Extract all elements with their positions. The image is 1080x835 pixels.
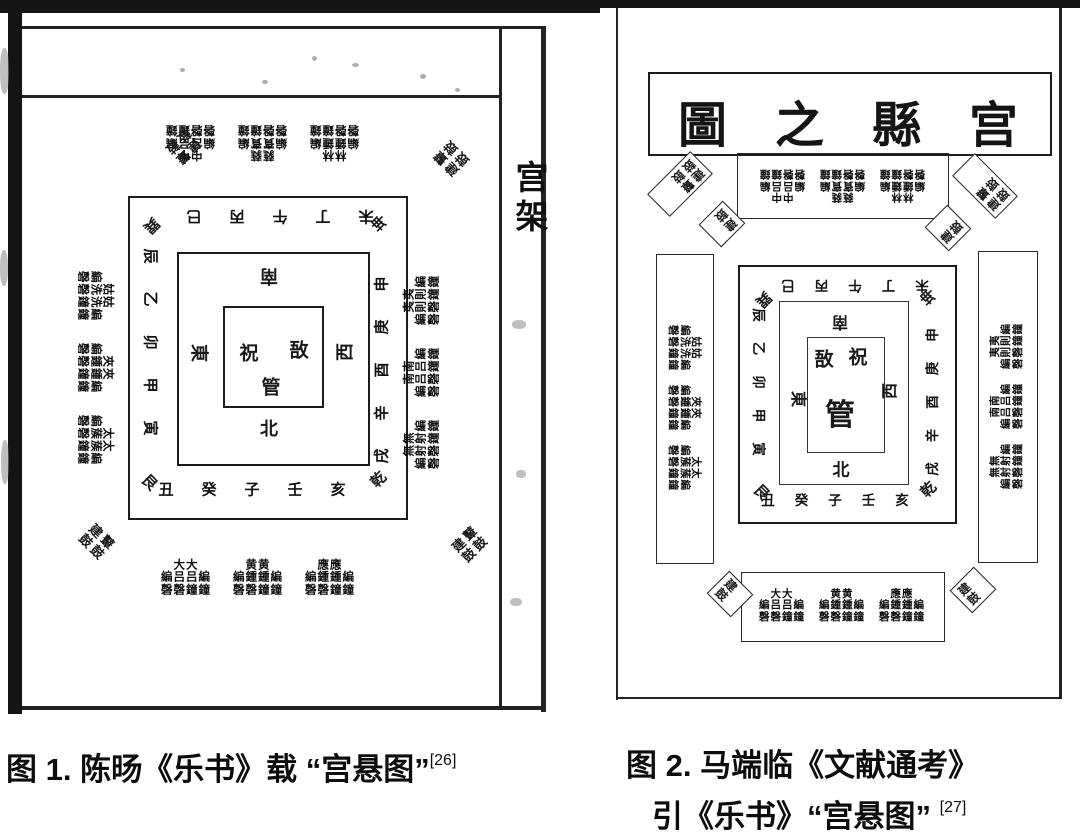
margin-divider-line xyxy=(499,28,502,707)
pitch-group: 應應編鍾鍾編磬磬鐘鐘 xyxy=(305,559,355,596)
direction-south: 南 xyxy=(832,312,848,336)
drum-label: 建鼓 xyxy=(713,206,740,233)
direction-north: 北 xyxy=(260,415,278,441)
pitch-group: 夾夾編鍾鍾編磬磬鐘鐘 xyxy=(667,385,701,431)
page-edge-right xyxy=(1059,8,1062,698)
bell-band-top: 林林編鍾鍾編磬磬鐘鐘蕤蕤編賓賓編磬磬鐘鐘中中編吕吕編磬磬鐘鐘 xyxy=(759,168,925,202)
title-char: 宫 xyxy=(969,86,1018,157)
diagram-title: 圖之縣宫 xyxy=(678,86,1018,157)
pitch-group: 大大編吕吕編磬磬鐘鐘 xyxy=(161,559,211,596)
instrument-yu: 敔 xyxy=(289,336,308,363)
page-frame-bottom xyxy=(22,706,546,710)
pitch-group: 應應編鍾鍾編磬磬鐘鐘 xyxy=(879,589,925,623)
instrument-zhu: 祝 xyxy=(848,343,867,370)
instrument-guan: 管 xyxy=(261,373,280,400)
bell-band-bottom: 大大編吕吕編磬磬鐘鐘黄黄編鍾鍾編磬磬鐘鐘應應編鍾鍾編磬磬鐘鐘 xyxy=(759,589,925,623)
pitch-group: 姑姑編洗洗編磬磬鐘鐘 xyxy=(76,271,113,321)
ink-speckle xyxy=(180,68,185,72)
drum-label: 建鼓 xyxy=(939,219,966,246)
ink-smudge xyxy=(0,250,8,286)
pitch-group: 黄黄編鍾鍾編磬磬鐘鐘 xyxy=(819,589,865,623)
pitch-group: 蕤蕤編賓賓編磬磬鐘鐘 xyxy=(237,123,287,160)
direction-west: 西 xyxy=(331,343,357,361)
pitch-group: 太太編蔟蔟編磬磬鐘鐘 xyxy=(76,415,113,465)
ink-smudge xyxy=(1,440,9,484)
pitch-group: 南南編吕吕編磬磬鐘鐘 xyxy=(990,383,1024,429)
figure2-caption-ref: [27] xyxy=(940,799,967,816)
pitch-group: 夷夷編則則編磬磬鐘鐘 xyxy=(990,323,1024,369)
drum-label: 建鼓 xyxy=(955,581,982,608)
ink-speckle xyxy=(352,63,359,67)
branches-col-west: 戌辛酉庚申 xyxy=(371,248,392,463)
figure2-caption-line2-text: 引《乐书》“宫悬图” xyxy=(652,799,931,834)
corner-drums-top-right: 建鼓鼙鼓 xyxy=(414,121,473,180)
title-char: 之 xyxy=(775,86,824,157)
direction-west: 西 xyxy=(876,383,900,399)
direction-south: 南 xyxy=(260,264,278,290)
title-char: 縣 xyxy=(872,86,921,157)
pitch-group: 夷夷編則則編磬磬鐘鐘 xyxy=(403,275,440,325)
corner-drums-top-right: 建鼓鼙鼓 xyxy=(952,153,1018,219)
branches-row-north: 丑癸子壬亥 xyxy=(158,479,373,500)
instrument-zhu: 祝 xyxy=(239,339,258,366)
title-char: 圖 xyxy=(678,86,727,157)
pitch-group: 蕤蕤編賓賓編磬磬鐘鐘 xyxy=(819,168,865,202)
pitch-group: 無無編射射編磬磬鐘鐘 xyxy=(403,419,440,469)
branches-col-east: 辰乙卯甲寅 xyxy=(141,248,162,463)
ink-speckle xyxy=(455,88,460,92)
ink-speckle xyxy=(312,56,317,61)
pitch-group: 姑姑編洗洗編磬磬鐘鐘 xyxy=(667,325,701,371)
ink-speckle xyxy=(420,74,426,79)
page-frame-left xyxy=(8,12,22,714)
figure2-caption-line2: 引《乐书》“宫悬图” [27] xyxy=(652,791,966,835)
figure1-caption-text: 图 1. 陈旸《乐书》载 “宫悬图” xyxy=(6,752,430,787)
ink-smudge xyxy=(512,320,526,329)
branches-col-west: 戌辛酉庚申 xyxy=(921,308,941,476)
branches-row-south: 未丁午丙巳 xyxy=(158,207,373,228)
branches-row-north: 丑癸子壬亥 xyxy=(761,489,929,509)
bell-band-right: 無無編射射編磬磬鐘鐘南南編吕吕編磬磬鐘鐘夷夷編則則編磬磬鐘鐘 xyxy=(990,323,1024,489)
page-frame-right xyxy=(541,26,546,712)
direction-north: 北 xyxy=(833,456,850,481)
inner-rule-line xyxy=(22,95,500,98)
pitch-group: 黄黄編鍾鍾編磬磬鐘鐘 xyxy=(233,559,283,596)
figure1-caption-ref: [26] xyxy=(430,752,457,769)
pitch-group: 林林編鍾鍾編磬磬鐘鐘 xyxy=(879,168,925,202)
ink-speckle xyxy=(262,80,268,84)
branches-col-east: 辰乙卯甲寅 xyxy=(750,308,770,476)
ink-smudge xyxy=(516,470,526,478)
pitch-group: 中中編吕吕編磬磬鐘鐘 xyxy=(759,168,805,202)
direction-east: 東 xyxy=(187,344,213,362)
branches-row-south: 未丁午丙巳 xyxy=(761,277,929,297)
scan-edge-bar xyxy=(0,0,600,13)
corner-drums-bottom-right: 建鼓 xyxy=(950,567,997,614)
pitch-group: 南南編吕吕編磬磬鐘鐘 xyxy=(403,347,440,397)
pitch-group: 林林編鍾鍾編磬磬鐘鐘 xyxy=(309,123,359,160)
ink-smudge xyxy=(0,48,9,94)
pitch-group: 無無編射射編磬磬鐘鐘 xyxy=(990,443,1024,489)
bell-band-bottom: 大大編吕吕編磬磬鐘鐘黄黄編鍾鍾編磬磬鐘鐘應應編鍾鍾編磬磬鐘鐘 xyxy=(161,559,355,596)
instrument-guan: 管 xyxy=(825,390,855,434)
figure1-caption: 图 1. 陈旸《乐书》载 “宫悬图”[26] xyxy=(6,744,456,789)
corner-drums-bottom-left: 建鼓鼙鼓 xyxy=(76,521,135,580)
margin-label-gongjia: 宫架 xyxy=(504,160,552,238)
page-frame-top xyxy=(22,26,546,29)
drum-label: 建鼓 xyxy=(712,576,739,603)
direction-east: 東 xyxy=(788,391,812,407)
page-edge-bottom xyxy=(616,697,1062,699)
scanned-figure-page: 林林編鍾鍾編磬磬鐘鐘蕤蕤編賓賓編磬磬鐘鐘中中編吕吕編磬磬鐘鐘 姑姑編洗洗編磬磬鐘… xyxy=(0,0,1080,835)
bell-band-left: 姑姑編洗洗編磬磬鐘鐘夾夾編鍾鍾編磬磬鐘鐘太太編蔟蔟編磬磬鐘鐘 xyxy=(667,325,701,491)
pitch-group: 太太編蔟蔟編磬磬鐘鐘 xyxy=(667,445,701,491)
bell-band-left: 姑姑編洗洗編磬磬鐘鐘夾夾編鍾鍾編磬磬鐘鐘太太編蔟蔟編磬磬鐘鐘 xyxy=(76,271,113,465)
bell-band-right: 無無編射射編磬磬鐘鐘南南編吕吕編磬磬鐘鐘夷夷編則則編磬磬鐘鐘 xyxy=(403,275,440,469)
scan-edge-bar xyxy=(600,0,1080,8)
pitch-group: 大大編吕吕編磬磬鐘鐘 xyxy=(759,589,805,623)
instrument-yu: 敔 xyxy=(814,345,833,372)
pitch-group: 夾夾編鍾鍾編磬磬鐘鐘 xyxy=(76,343,113,393)
ink-smudge xyxy=(510,598,522,606)
corner-drums-top-left: 建鼓鼙鼓 xyxy=(647,151,713,217)
page-edge-left xyxy=(616,8,618,700)
figure2-caption-line1: 图 2. 马端临《文献通考》 xyxy=(626,740,979,785)
